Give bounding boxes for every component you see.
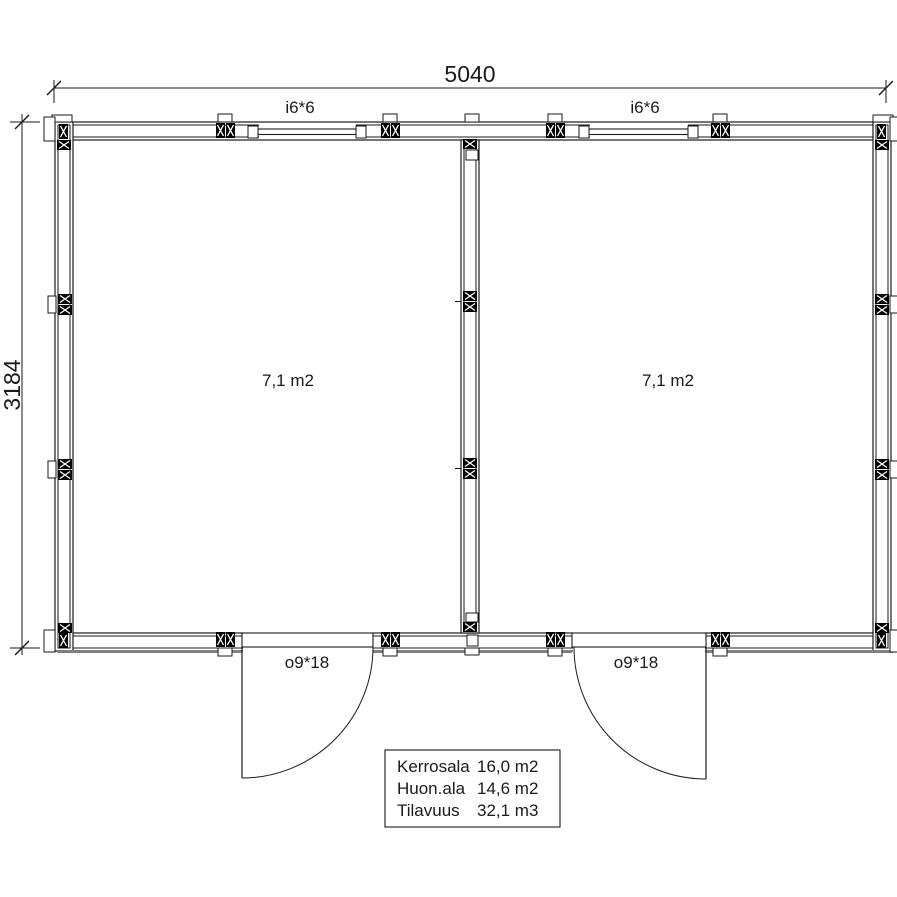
post-plate <box>44 630 55 652</box>
wall-post <box>711 632 720 647</box>
wall-post <box>546 123 555 138</box>
wall-post <box>226 632 235 647</box>
window-2: i6*6 <box>579 98 698 139</box>
wall-post <box>875 459 889 469</box>
wall-post <box>59 633 68 648</box>
wall-post <box>391 123 400 138</box>
post-plate <box>48 461 56 478</box>
left-dimension-label: 3184 <box>0 359 25 410</box>
wall-post <box>381 123 390 138</box>
dimension-top: 5040 <box>47 61 893 103</box>
window-2-jamb <box>579 126 589 138</box>
wall-post <box>721 632 730 647</box>
door-2: o9*18 <box>574 647 706 779</box>
wall-post <box>58 305 72 315</box>
corner-post-bottom-right <box>875 623 897 652</box>
door-1-label: o9*18 <box>285 653 329 672</box>
window-1-label: i6*6 <box>285 98 314 117</box>
info-table-row-value: 14,6 m2 <box>477 779 538 798</box>
post-plate <box>466 150 478 160</box>
wall-post <box>216 632 225 647</box>
wall-post <box>58 459 72 469</box>
door-1-opening <box>242 633 373 647</box>
wall-post <box>556 123 565 138</box>
info-table-row-label: Huon.ala <box>397 779 466 798</box>
post-plate <box>383 114 397 122</box>
door-2-opening <box>572 633 706 647</box>
wall-post <box>226 123 235 138</box>
post-plate <box>713 648 727 656</box>
walls <box>55 122 893 656</box>
wall-post <box>877 633 886 648</box>
post-plate <box>465 648 479 655</box>
wall-post <box>546 632 555 647</box>
window-1-jamb <box>356 126 366 138</box>
info-table: Kerrosala 16,0 m2 Huon.ala 14,6 m2 Tilav… <box>385 750 560 827</box>
info-table-row-value: 32,1 m3 <box>477 801 538 820</box>
room-2-area-label: 7,1 m2 <box>642 371 694 390</box>
info-table-row-label: Tilavuus <box>397 801 460 820</box>
wall-post <box>463 458 477 468</box>
wall-post <box>216 123 225 138</box>
window-2-label: i6*6 <box>630 98 659 117</box>
post-plate <box>466 613 478 622</box>
post-plate <box>383 648 397 656</box>
wall-post <box>556 632 565 647</box>
wall-post <box>875 140 889 150</box>
post-plate <box>548 648 562 656</box>
wall-post <box>58 294 72 304</box>
wall-post <box>381 632 390 647</box>
info-table-row-value: 16,0 m2 <box>477 757 538 776</box>
wall-post <box>463 469 477 479</box>
wall-post <box>875 470 889 480</box>
wall-post <box>463 622 477 632</box>
wall-post <box>463 291 477 301</box>
wall-post <box>875 623 889 633</box>
wall-post <box>875 294 889 304</box>
wall-post <box>463 302 477 312</box>
post-plate <box>44 117 55 141</box>
wall-post <box>711 123 720 138</box>
window-1-jamb <box>248 126 258 138</box>
wall-post <box>875 305 889 315</box>
post-plate <box>713 114 727 122</box>
wall-post <box>59 124 68 139</box>
post-plate <box>548 114 562 122</box>
wall-post <box>721 123 730 138</box>
wall-post <box>463 139 477 149</box>
post-plate <box>890 296 897 313</box>
top-dimension-label: 5040 <box>444 61 495 87</box>
window-1: i6*6 <box>248 98 366 139</box>
post-plate <box>218 114 232 122</box>
wall-post <box>58 470 72 480</box>
door-1: o9*18 <box>242 647 373 778</box>
post-plate <box>890 630 897 652</box>
info-table-row-label: Kerrosala <box>397 757 470 776</box>
post-plate <box>890 117 897 141</box>
wall-post <box>877 124 886 139</box>
door-2-label: o9*18 <box>614 653 658 672</box>
wall-post <box>58 623 72 633</box>
floor-plan-svg: 5040 3184 <box>0 0 897 897</box>
post-plate <box>890 461 897 478</box>
room-1-area-label: 7,1 m2 <box>262 371 314 390</box>
post-plate <box>467 635 478 646</box>
post-plate <box>218 648 232 656</box>
wall-post <box>57 140 71 150</box>
dimension-left: 3184 <box>0 114 40 655</box>
post-plate <box>48 296 56 313</box>
post-plate <box>465 114 479 122</box>
wall-post <box>391 632 400 647</box>
window-2-jamb <box>688 126 698 138</box>
